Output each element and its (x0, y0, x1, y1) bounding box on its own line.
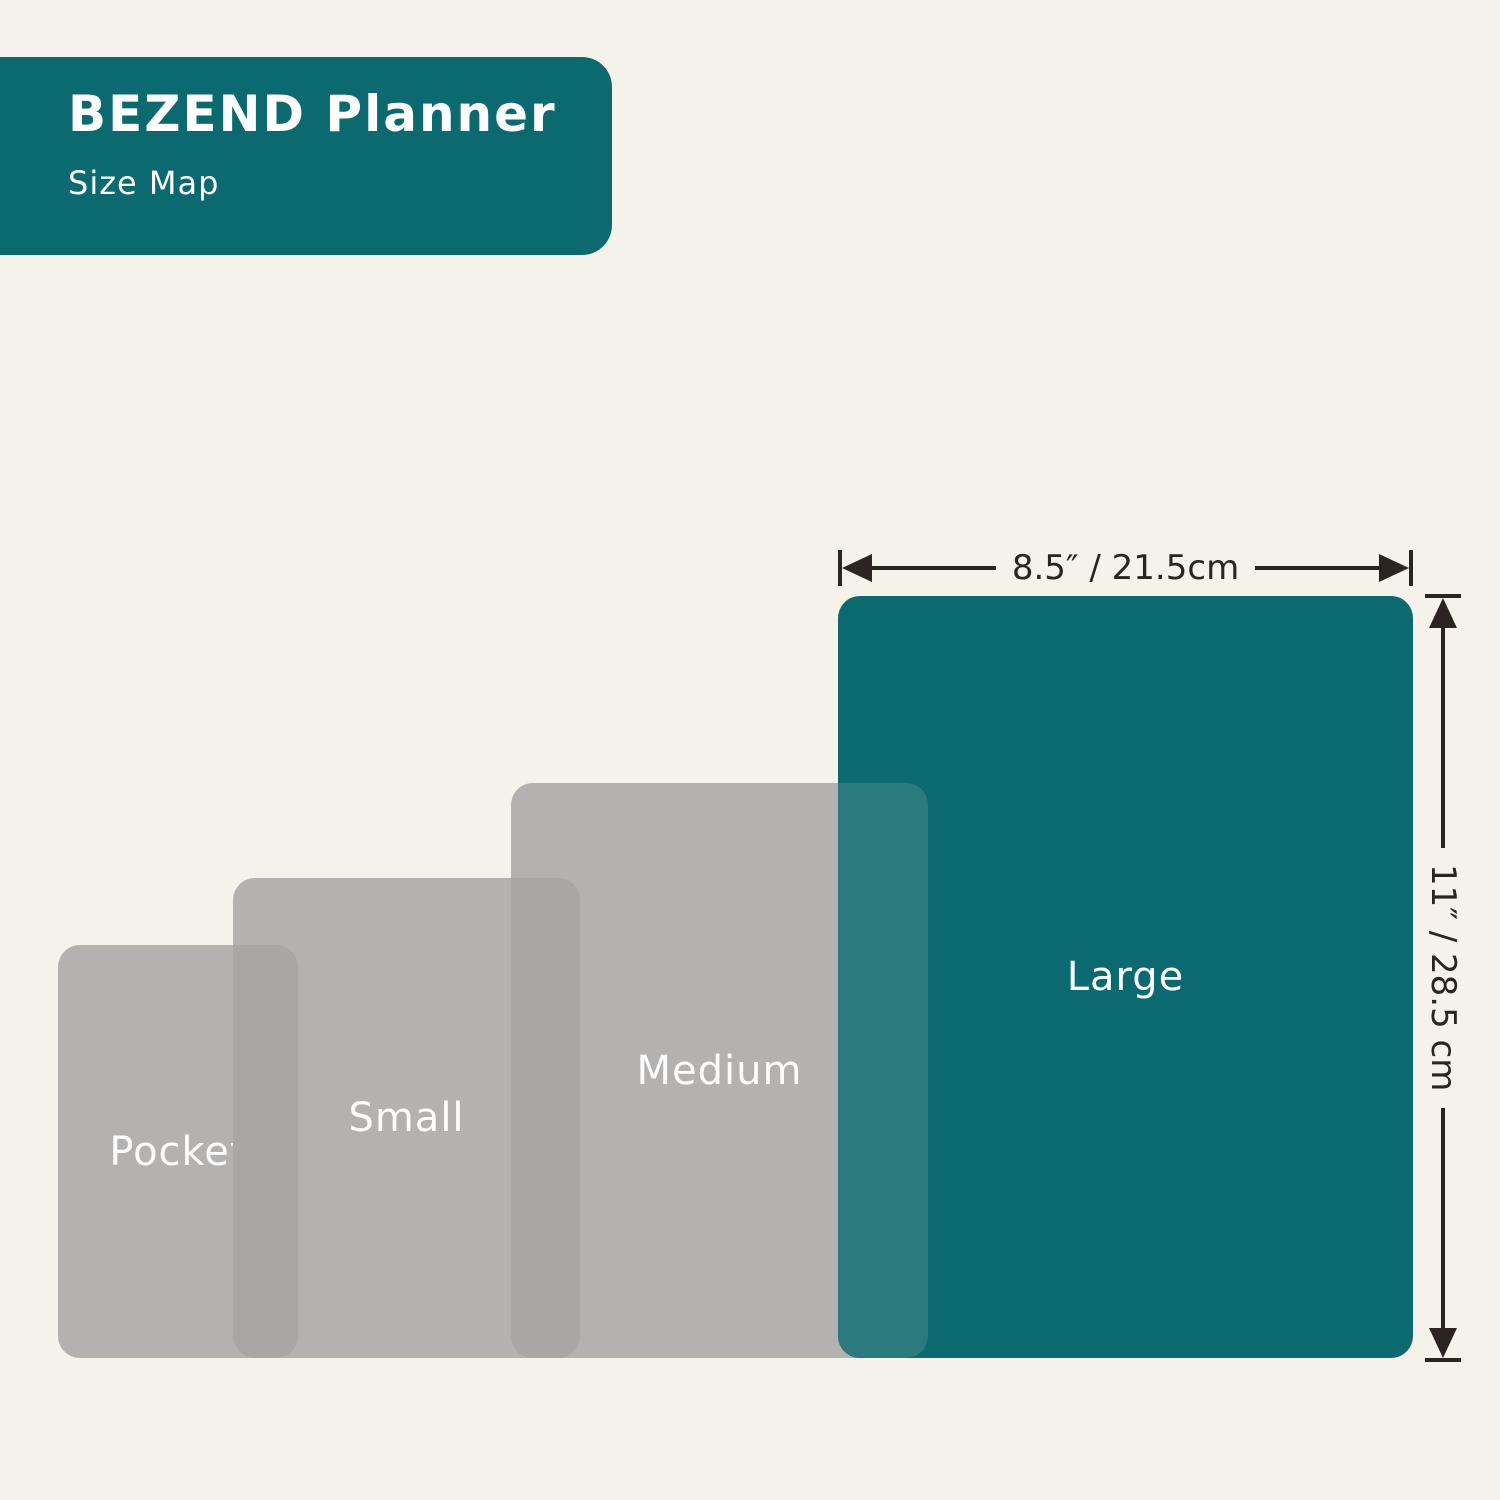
arrowhead-up-icon (1429, 598, 1457, 628)
page-subtitle: Size Map (68, 164, 612, 202)
brand-title: BEZEND Planner (68, 87, 612, 142)
dimension-end-cap (1409, 550, 1413, 586)
dimension-line (1441, 628, 1445, 848)
dimension-line (1441, 1108, 1445, 1328)
size-label-small: Small (348, 1095, 464, 1141)
width-dimension: 8.5″ / 21.5cm (838, 548, 1413, 588)
overlap-medium-large (838, 783, 928, 1358)
overlap-pocket-small (233, 945, 298, 1358)
height-dimension-label: 11″ / 28.5 cm (1423, 848, 1463, 1107)
size-label-large: Large (1067, 954, 1185, 1000)
dimension-end-cap (1425, 1358, 1461, 1362)
width-dimension-label: 8.5″ / 21.5cm (996, 548, 1255, 588)
arrowhead-left-icon (842, 554, 872, 582)
arrowhead-down-icon (1429, 1328, 1457, 1358)
overlap-small-medium (511, 878, 580, 1358)
size-map-canvas: BEZEND Planner Size Map Pocket Small Med… (0, 0, 1500, 1500)
size-label-medium: Medium (637, 1048, 803, 1094)
dimension-line (1255, 566, 1379, 570)
header-panel: BEZEND Planner Size Map (0, 57, 612, 255)
height-dimension: 11″ / 28.5 cm (1423, 594, 1463, 1362)
dimension-line (872, 566, 996, 570)
arrowhead-right-icon (1379, 554, 1409, 582)
size-label-pocket: Pocket (109, 1129, 246, 1175)
